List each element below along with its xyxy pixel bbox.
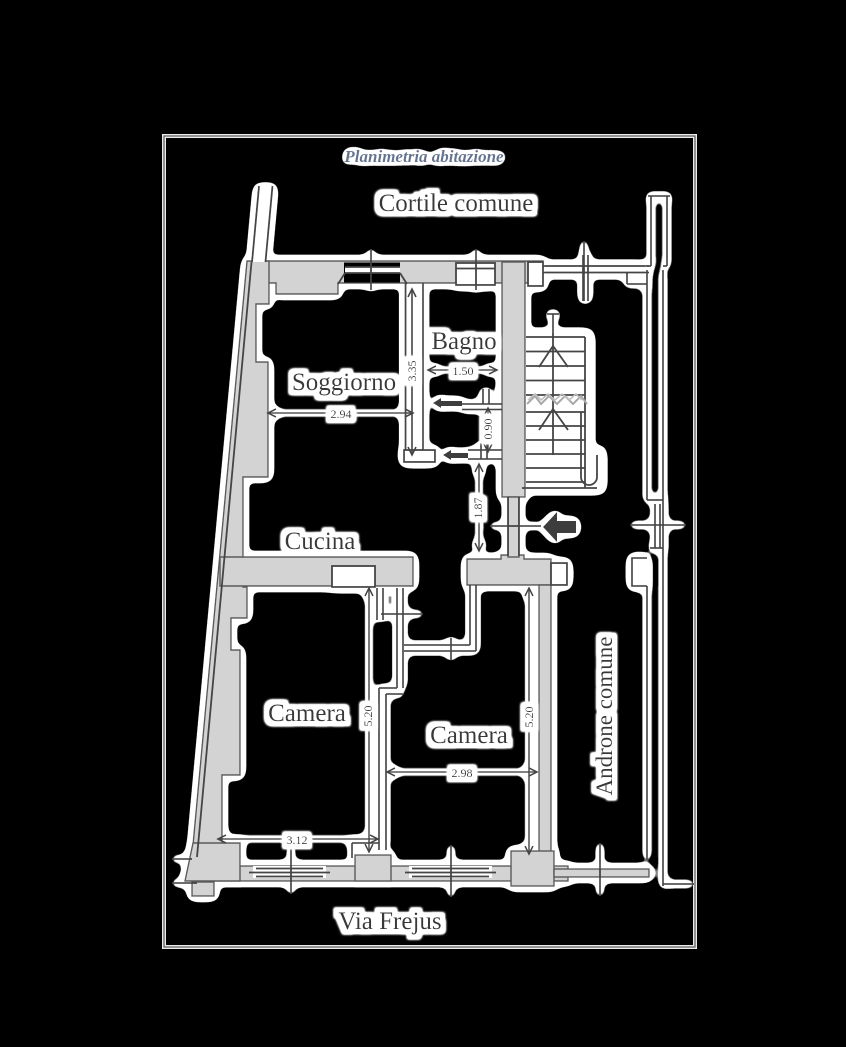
- svg-text:5.20: 5.20: [361, 706, 375, 727]
- svg-text:Camera: Camera: [430, 722, 508, 749]
- svg-text:3.12: 3.12: [287, 833, 308, 847]
- svg-text:3.35: 3.35: [405, 361, 419, 382]
- svg-text:Soggiorno: Soggiorno: [292, 369, 396, 396]
- svg-text:0.90: 0.90: [481, 419, 495, 440]
- svg-text:Via Frejus: Via Frejus: [338, 908, 441, 935]
- svg-text:2.98: 2.98: [452, 766, 473, 780]
- svg-text:5.20: 5.20: [522, 707, 536, 728]
- svg-text:Bagno: Bagno: [431, 328, 496, 355]
- svg-text:1.50: 1.50: [453, 364, 474, 378]
- svg-text:Planimetria abitazione: Planimetria abitazione: [343, 147, 504, 166]
- svg-text:Cucina: Cucina: [285, 528, 356, 555]
- svg-text:2.94: 2.94: [331, 407, 352, 421]
- svg-text:Androne comune: Androne comune: [592, 636, 617, 795]
- svg-text:1.87: 1.87: [471, 498, 485, 519]
- svg-text:Camera: Camera: [268, 700, 346, 727]
- svg-text:Cortile comune: Cortile comune: [379, 190, 534, 217]
